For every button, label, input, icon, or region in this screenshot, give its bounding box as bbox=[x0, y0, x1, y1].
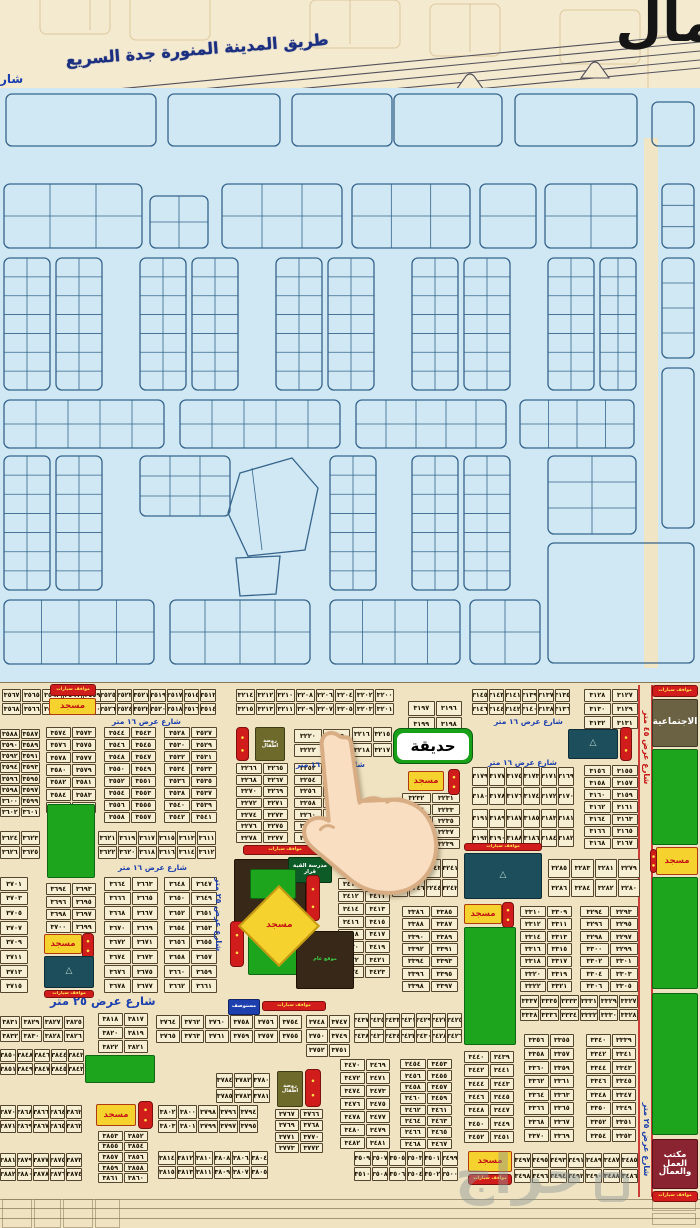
parcel: ٣٣٤٥ bbox=[612, 1075, 637, 1088]
street-width-label-vertical: شارع عرض ٤٥ متر bbox=[640, 689, 653, 805]
parcel: ٣٥٥٧ bbox=[131, 812, 157, 823]
parcel: ٣٤٦٧ bbox=[427, 1139, 453, 1149]
parcel-block: ٣٣٣٧٣٣٣٥٣٣٣٣٣٣٣١٣٣٢٩٣٣٢٧٣٣٣٨٣٣٣٦٣٣٣٤٣٣٣٢… bbox=[520, 995, 638, 1021]
parcel: ٣٣٣٣ bbox=[560, 995, 579, 1008]
parcel: ٣٨٠٢ bbox=[158, 1105, 177, 1119]
parcel: ٣٣٥٠ bbox=[586, 1102, 611, 1115]
parcel: ٣٥٩٩ bbox=[21, 796, 41, 806]
parcel: ٣٣٧٠ bbox=[524, 1129, 549, 1142]
parcel: ٣٤٨٢ bbox=[340, 1137, 365, 1149]
parking-bar-icon bbox=[650, 849, 657, 873]
parcel: ٣٥٥٢ bbox=[104, 776, 130, 787]
parcel-block: ٣٣٥٦٣٣٥٥٣٣٥٨٣٣٥٧٣٣٦٠٣٣٥٩٣٣٦٢٣٣٦١٣٣٦٤٣٣٦٣… bbox=[524, 1034, 574, 1142]
parcel: ٣٢٨٠ bbox=[618, 879, 640, 898]
parcel: ٣٨٥١ bbox=[0, 1063, 16, 1076]
parcel: ٣٦٢٢ bbox=[98, 846, 117, 860]
parcel: ٣٢٨٣ bbox=[571, 859, 593, 878]
parcel: ٣٧٧٣ bbox=[275, 1143, 299, 1153]
parcel: ٣٤٢٨ bbox=[432, 1029, 447, 1044]
parcel: ٣٣٤١ bbox=[612, 1048, 637, 1061]
parcel: ٣١٣٨ bbox=[538, 703, 554, 716]
street-width-label-vertical: شارع عرض ٢٥ متر bbox=[640, 1097, 653, 1181]
parcel: ٣٧٠٠ bbox=[46, 921, 71, 933]
parcel-block: ٣٧٦٤٣٧٦٢٣٧٦٠٣٧٥٨٣٧٥٦٣٧٥٤٣٧٦٥٣٧٦٣٣٧٦١٣٧٥٩… bbox=[156, 1015, 302, 1043]
parcel: ٣٥٨٣ bbox=[72, 789, 97, 800]
parcel: ٣٥٠٩ bbox=[354, 1151, 371, 1166]
parcel: ٣٤٢٥ bbox=[447, 1013, 462, 1028]
parcel: ٣٦٧٤ bbox=[104, 950, 131, 964]
parcel: ٣٨٧٦ bbox=[50, 1168, 66, 1182]
parcel: ٣٤٢٣ bbox=[365, 966, 391, 978]
parcel: ٣٤٩٥ bbox=[532, 1153, 549, 1168]
parcel: ٣٢٠٠ bbox=[375, 689, 394, 702]
parcel: ٣٤٣٥ bbox=[370, 1013, 385, 1028]
parcel: ٣٥١٦ bbox=[184, 703, 200, 716]
mosque-label: مسجد bbox=[464, 904, 502, 924]
parcel: ٣١٦٨ bbox=[584, 838, 611, 849]
parcel: ٣٥٧٣ bbox=[72, 727, 97, 738]
parcel: ٣٤٨٧ bbox=[603, 1153, 620, 1168]
parcel: ٣٢٦٦ bbox=[236, 763, 262, 774]
parcel: ٣٨٢٢ bbox=[98, 1040, 123, 1053]
parcel: ٣٦٧٢ bbox=[104, 936, 131, 950]
parcel: ٣٧٥٠ bbox=[306, 1029, 328, 1042]
parcel-block: ٣٢٨٥٣٢٨٣٣٢٨١٣٢٧٩٣٢٨٦٣٢٨٤٣٢٨٢٣٢٨٠ bbox=[548, 859, 640, 897]
parcel: ٣٥٣٥ bbox=[191, 776, 217, 787]
parcel: ٣٧٥٧ bbox=[254, 1030, 278, 1044]
parcel: ٣٦٦٥ bbox=[132, 892, 159, 906]
parcel: ٣٤٢٦ bbox=[447, 1029, 462, 1044]
parcel: ٣٤٧٦ bbox=[340, 1098, 365, 1110]
parcel: ٣١٨٢ bbox=[558, 829, 574, 848]
edge-parcel bbox=[652, 1213, 696, 1225]
parcel: ٣٤٩٦ bbox=[532, 1169, 549, 1184]
parcel: ٣٤٣٨ bbox=[354, 1029, 369, 1044]
parcel: ٣٣٦٧ bbox=[550, 1116, 575, 1129]
parcel: ٣٨٤٨ bbox=[17, 1049, 33, 1062]
parcel: ٣٥٣٦ bbox=[164, 776, 190, 787]
parcel: ٣٥٧٤ bbox=[46, 727, 71, 738]
parcel: ٣٣٣٥ bbox=[540, 995, 559, 1008]
parcel: ٣٢٩٤ bbox=[580, 906, 609, 917]
parcel: ٣٢٧٩ bbox=[618, 859, 640, 878]
parcel: ٣٥٠٠ bbox=[442, 1167, 459, 1182]
parcel: ٣٥٢١ bbox=[133, 689, 149, 702]
parcel: ٣٥٣٨ bbox=[164, 788, 190, 799]
parcel: ٣٦٧٥ bbox=[132, 965, 159, 979]
parcel: ٣٥٢٥ bbox=[100, 689, 116, 702]
mosque-label: مسجد bbox=[49, 698, 96, 715]
parcel: ٣٥٠٤ bbox=[407, 1167, 424, 1182]
parcel: ٣١٦٤ bbox=[584, 814, 611, 825]
parcel: ٣٦٩٥ bbox=[72, 896, 97, 908]
parcel-block: ٣٨٨١٣٨٧٩٣٨٧٧٣٨٧٥٣٨٧٣٣٨٨٢٣٨٨٠٣٨٧٨٣٨٧٦٣٨٧٤ bbox=[0, 1153, 82, 1181]
parking-strip: مواقف سيارات bbox=[262, 1001, 326, 1011]
kindergarten-label: روضة اطفال bbox=[255, 727, 285, 761]
parcel: ٣١٢٩ bbox=[612, 703, 639, 716]
parcel: ٣٤٢٩ bbox=[416, 1013, 431, 1028]
parcel: ٣٤٩٩ bbox=[442, 1151, 459, 1166]
parcel: ٣٦١٦ bbox=[158, 846, 177, 860]
parcel: ٣٨٧١ bbox=[0, 1120, 16, 1134]
parcel: ٣٥٠٦ bbox=[389, 1167, 406, 1182]
parcel-block: ٣٤٩٧٣٤٩٥٣٤٩٣٣٤٩١٣٤٨٩٣٤٨٧٣٤٨٥٣٤٩٨٣٤٩٦٣٤٩٤… bbox=[514, 1153, 638, 1183]
parcel: ٣٤٩٨ bbox=[514, 1169, 531, 1184]
parcel-block: ٣٧٨٤٣٧٨٢٣٧٨٠٣٧٨٥٣٧٨٣٣٧٨١ bbox=[216, 1073, 270, 1103]
parcel: ٣٣٠٦ bbox=[580, 981, 609, 992]
parcel: ٣٧٧٢ bbox=[300, 1143, 324, 1153]
parcel-block: ٣٤٧٠٣٤٦٩٣٤٧٢٣٤٧١٣٤٧٤٣٤٧٣٣٤٧٦٣٤٧٥٣٤٧٨٣٤٧٧… bbox=[340, 1059, 390, 1149]
parcel: ٣٤٣٩ bbox=[490, 1051, 515, 1063]
parcel: ٣٧٥٤ bbox=[279, 1015, 303, 1029]
parcel: ٣٨٥٥ bbox=[98, 1142, 123, 1152]
parcel: ٣٨١٢ bbox=[177, 1151, 195, 1165]
parcel: ٣٥٨٢ bbox=[46, 777, 71, 788]
parcel: ٣٢٩٣ bbox=[610, 906, 639, 917]
parcel: ٣٨١٤ bbox=[158, 1151, 176, 1165]
parcel: ٣٨٦٣ bbox=[66, 1120, 82, 1134]
edge-parcel bbox=[95, 1199, 120, 1228]
parcel: ٣٧٨٤ bbox=[216, 1073, 233, 1088]
parcel: ٣١٣٥ bbox=[555, 689, 571, 702]
parcel: ٣٢٩٦ bbox=[580, 918, 609, 929]
parcel: ٣٤٧٨ bbox=[340, 1111, 365, 1123]
parcel: ٣٥٨٧ bbox=[21, 729, 41, 739]
parcel: ٣٥٧٨ bbox=[46, 752, 71, 763]
parcel: ٣٣٢٧ bbox=[619, 995, 638, 1008]
parcel: ٣١٣٧ bbox=[538, 689, 554, 702]
parcel: ٣٨١١ bbox=[195, 1166, 213, 1180]
parcel: ٣٦٥٢ bbox=[164, 906, 190, 920]
parcel: ٣٣٥٦ bbox=[524, 1034, 549, 1047]
parcel: ٣٨٠٧ bbox=[232, 1166, 250, 1180]
parcel: ٣١٧٠ bbox=[558, 787, 574, 806]
parcel: ٣٨٥٨ bbox=[124, 1163, 149, 1173]
parcel: ٣٥١٣ bbox=[200, 689, 216, 702]
parcel: ٣٨٢٥ bbox=[64, 1016, 84, 1029]
parcel: ٣٨٠٨ bbox=[214, 1151, 232, 1165]
parcel-block: ٣١٧٩٣١٧٧٣١٧٥٣١٧٣٣١٧١٣١٦٩٣١٨٠٣١٧٨٣١٧٦٣١٧٤… bbox=[472, 767, 574, 805]
parcel: ٣٨٧٨ bbox=[33, 1168, 49, 1182]
parcel: ٣٤٤٩ bbox=[490, 1117, 515, 1129]
parcel: ٣٦٦٧ bbox=[132, 906, 159, 920]
parcel-block: ٣١٢٨٣١٢٧٣١٣٠٣١٢٩٣١٣٢٣١٣١ bbox=[584, 689, 638, 729]
parcel: ٣٨٣١ bbox=[0, 1016, 20, 1029]
parcel: ٣٨٠٤ bbox=[251, 1151, 269, 1165]
parcel: ٣٢١١ bbox=[276, 703, 295, 716]
blue-parcel-region bbox=[0, 88, 700, 682]
parcel: ٣٢٩٩ bbox=[610, 943, 639, 954]
parcel: ٣١٧٤ bbox=[523, 787, 539, 806]
parcel: ٣٦٧١ bbox=[132, 936, 159, 950]
parcel: ٣٤٣٤ bbox=[385, 1029, 400, 1044]
parcel: ٣٦٠٠ bbox=[0, 796, 20, 806]
parcel: ٣١٩١ bbox=[472, 809, 488, 828]
parcel: ٣٤٨١ bbox=[366, 1137, 391, 1149]
parcel: ٣٣٥٥ bbox=[550, 1034, 575, 1047]
parcel: ٣٨٠١ bbox=[178, 1120, 197, 1134]
parcel: ٣٥١٠ bbox=[354, 1167, 371, 1182]
parcel: ٣٨٤٥ bbox=[51, 1063, 67, 1076]
parcel: ٣٥٢٣ bbox=[117, 689, 133, 702]
parcel: ٣٥٤٧ bbox=[131, 751, 157, 762]
parcel: ٣٧٦٦ bbox=[300, 1109, 324, 1119]
parcel-block: ٣٣٤٠٣٣٣٩٣٣٤٢٣٣٤١٣٣٤٤٣٣٤٣٣٣٤٦٣٣٤٥٣٣٤٨٣٣٤٧… bbox=[586, 1034, 636, 1142]
parcel: ٣٨٠٩ bbox=[214, 1166, 232, 1180]
labor-office-label: مكتب العملوالعمال bbox=[652, 1139, 698, 1189]
parcel: ٣٨٦٢ bbox=[66, 1105, 82, 1119]
parcel-block: ٣٥٠٩٣٥٠٧٣٥٠٥٣٥٠٣٣٥٠١٣٤٩٩٣٥١٠٣٥٠٨٣٥٠٦٣٥٠٤… bbox=[354, 1151, 458, 1181]
parcel-block: ٣٦٢٤٣٦٢٣٣٦٢٦٣٦٢٥ bbox=[0, 831, 40, 859]
parcel: ٣٢٨٤ bbox=[571, 879, 593, 898]
parcel: ٣٥٠٢ bbox=[424, 1167, 441, 1182]
parcel: ٣٨٤٧ bbox=[34, 1063, 50, 1076]
parcel: ٣٥٤٤ bbox=[104, 727, 130, 738]
parcel-block: ٣٧٦٧٣٧٦٦٣٧٦٩٣٧٦٨٣٧٧١٣٧٧٠٣٧٧٣٣٧٧٢ bbox=[275, 1109, 323, 1153]
parcel: ٣٤٤٧ bbox=[490, 1104, 515, 1116]
parcel: ٣٧٧٠ bbox=[300, 1132, 324, 1142]
parcel: ٣٢٠٥ bbox=[335, 703, 354, 716]
parcel: ٣٤٣٠ bbox=[416, 1029, 431, 1044]
parcel: ٣٦٢٤ bbox=[0, 831, 20, 845]
parcel: ٣١٨٠ bbox=[472, 787, 488, 806]
parcel: ٣٤٥٩ bbox=[427, 1093, 453, 1103]
mosque-label: مسجد bbox=[468, 1151, 512, 1172]
plat-map-screenshot: طريق المدينة المنورة جدة السريع مال شار … bbox=[0, 0, 700, 1228]
parcel: ٣٢١٠ bbox=[276, 689, 295, 702]
parcel: ٣٥٥٥ bbox=[131, 800, 157, 811]
parcel: ٣٦٢٦ bbox=[0, 846, 20, 860]
parcel: ٣٤٣٢ bbox=[401, 1029, 416, 1044]
parcel: ٣٣٤٨ bbox=[586, 1089, 611, 1102]
blue-blocks bbox=[0, 88, 700, 682]
parcel: ٣١٥٧ bbox=[612, 777, 639, 788]
parcel: ٣٢٨٦ bbox=[548, 879, 570, 898]
parcel: ٣٣٤٣ bbox=[612, 1061, 637, 1074]
parking-bar-icon bbox=[138, 1101, 153, 1129]
park-area bbox=[652, 749, 698, 845]
parcel: ٣٤٦٤ bbox=[400, 1116, 426, 1126]
parcel: ٣٨١٧ bbox=[124, 1013, 149, 1026]
parcel: ٣٣٥٧ bbox=[550, 1048, 575, 1061]
parcel: ٣٥٨١ bbox=[72, 777, 97, 788]
parcel: ٣٧٨١ bbox=[253, 1089, 270, 1104]
street-width-label: شارع عرض ١٦ متر bbox=[488, 758, 557, 767]
parcel: ٣٨٤٣ bbox=[68, 1063, 84, 1076]
parcel: ٣٧٠٩ bbox=[0, 936, 28, 950]
parcel-block: ٣١٥٦٣١٥٥٣١٥٨٣١٥٧٣١٦٠٣١٥٩٣١٦٢٣١٦١٣١٦٤٣١٦٣… bbox=[584, 765, 638, 849]
parcel: ٣٨٠٦ bbox=[232, 1151, 250, 1165]
parcel: ٣١٤٥ bbox=[472, 689, 488, 702]
parcel: ٣١٦٣ bbox=[612, 814, 639, 825]
parcel: ٣٦٧٧ bbox=[132, 979, 159, 993]
park-area bbox=[464, 927, 516, 1045]
parcel: ٣٣٥٨ bbox=[524, 1048, 549, 1061]
parcel: ٣٧٧١ bbox=[275, 1132, 299, 1142]
parcel: ٣٣١٢ bbox=[520, 918, 546, 929]
parcel: ٣٢٩٨ bbox=[580, 931, 609, 942]
parcel: ٣٦١٧ bbox=[138, 831, 157, 845]
parcel: ٣٨٣٠ bbox=[21, 1030, 41, 1043]
parcel-block: ٣٦٦٤٣٦٦٣٣٦٦٦٣٦٦٥٣٦٦٨٣٦٦٧٣٦٧٠٣٦٦٩٣٦٧٢٣٦٧١… bbox=[104, 877, 158, 993]
parcel: ٣٢١٥ bbox=[236, 703, 255, 716]
parcel: ٣٧٩٨ bbox=[198, 1105, 217, 1119]
parcel: ٣٤٤٤ bbox=[464, 1078, 489, 1090]
parcel: ٣٤٩٤ bbox=[550, 1169, 567, 1184]
parcel: ٣٥٩٨ bbox=[0, 785, 20, 795]
parcel: ٣٧٠٣ bbox=[0, 892, 28, 906]
parcel: ٣١٨٣ bbox=[541, 809, 557, 828]
parcel: ٣٣٣٧ bbox=[520, 995, 539, 1008]
parcel: ٣٤٦٦ bbox=[400, 1127, 426, 1137]
parcel: ٣١٢٧ bbox=[612, 689, 639, 702]
parcel: ٣٦٧٦ bbox=[104, 965, 131, 979]
parcel: ٣٨٦٥ bbox=[50, 1120, 66, 1134]
parcel: ٣٤١٧ bbox=[365, 929, 391, 941]
parcel: ٣٨١٥ bbox=[158, 1166, 176, 1180]
parcel: ٣٥٥٤ bbox=[104, 788, 130, 799]
parcel: ٣٥٠٥ bbox=[389, 1151, 406, 1166]
parcel: ٣٥٩٥ bbox=[21, 774, 41, 784]
parcel: ٣٨٥٩ bbox=[98, 1163, 123, 1173]
parcel: ٣٤٨٦ bbox=[621, 1169, 638, 1184]
parcel: ٣٤٥١ bbox=[490, 1131, 515, 1143]
parcel: ٣١٧٦ bbox=[506, 787, 522, 806]
parcel: ٣٧٩٥ bbox=[239, 1120, 258, 1134]
parcel-block: ٣٥٤٤٣٥٤٣٣٥٤٦٣٥٤٥٣٥٤٨٣٥٤٧٣٥٥٠٣٥٤٩٣٥٥٢٣٥٥١… bbox=[104, 727, 156, 823]
parcel: ٣٤٥٢ bbox=[464, 1131, 489, 1143]
parcel: ٣٣٤٦ bbox=[586, 1075, 611, 1088]
parcel: ٣٧٩٤ bbox=[239, 1105, 258, 1119]
parcel: ٣٥١٤ bbox=[200, 703, 216, 716]
parcel: ٣١٦٦ bbox=[584, 826, 611, 837]
parcel: ٣٨١٣ bbox=[177, 1166, 195, 1180]
parcel: ٣٥٢٨ bbox=[164, 727, 190, 738]
edge-parcel bbox=[34, 1199, 61, 1228]
parcel: ٣٥٩٦ bbox=[0, 774, 20, 784]
parcel: ٣٢٠٣ bbox=[355, 703, 374, 716]
parcel: ٣٥٤٩ bbox=[131, 763, 157, 774]
parking-strip: مواقف سيارات bbox=[652, 685, 698, 697]
parcel: ٣٥٢٤ bbox=[117, 703, 133, 716]
parcel: ٣٤١٥ bbox=[365, 916, 391, 928]
parcel: ٣٤٦٩ bbox=[366, 1059, 391, 1071]
parcel: ٣٦٢٣ bbox=[21, 831, 41, 845]
parcel: ٣٤٦٥ bbox=[427, 1127, 453, 1137]
mosque-label: مسجد bbox=[656, 847, 698, 875]
parcel: ٣٥٦٦ bbox=[22, 703, 41, 716]
parcel: ٣٢٦٧ bbox=[263, 775, 289, 786]
parcel: ٣٣٢٩ bbox=[599, 995, 618, 1008]
edge-parcel bbox=[2, 1199, 32, 1228]
parcel: ٣٤٣٦ bbox=[370, 1029, 385, 1044]
clinic-label: مستوصف bbox=[228, 999, 260, 1015]
parcel: ٣١٦٩ bbox=[558, 767, 574, 786]
parcel: ٣٤٣٣ bbox=[385, 1013, 400, 1028]
parcel: ٣٢٧٨ bbox=[236, 832, 262, 843]
parcel-block: ٣٢٦٦٣٢٦٥٣٢٦٨٣٢٦٧٣٢٧٠٣٢٦٩٣٢٧٢٣٢٧١٣٢٧٤٣٢٧٣… bbox=[236, 763, 288, 843]
parcel: ٣٣٠٢ bbox=[580, 956, 609, 967]
parcel: ٣٨٦١ bbox=[98, 1173, 123, 1183]
street-width-label: شارع عرض ١٦ متر bbox=[494, 717, 563, 726]
parcel-block: ٣٥٨٨٣٥٨٧٣٥٩٠٣٥٨٩٣٥٩٢٣٥٩١٣٥٩٤٣٥٩٣٣٥٩٦٣٥٩٥… bbox=[0, 729, 40, 817]
parcel: ٣٨٥٢ bbox=[124, 1131, 149, 1141]
parcel: ٣٦٧٠ bbox=[104, 921, 131, 935]
parcel: ٣٣٨٩ bbox=[431, 931, 459, 942]
parcel: ٣٢٧٠ bbox=[236, 786, 262, 797]
parking-strip: مواقف سيارات bbox=[468, 1174, 512, 1185]
parcel: ٣٥٤٢ bbox=[164, 812, 190, 823]
parcel: ٣١٨٧ bbox=[506, 809, 522, 828]
parcel: ٣١٥٨ bbox=[584, 777, 611, 788]
parcel: ٣٨٨٠ bbox=[17, 1168, 33, 1182]
parcel: ٣٣١٦ bbox=[520, 943, 546, 954]
parcel: ٣٤٨٥ bbox=[621, 1153, 638, 1168]
parcel: ٣٣٨٨ bbox=[402, 918, 430, 929]
parcel: ٣٤٤٨ bbox=[464, 1104, 489, 1116]
parcel: ٣٢١٤ bbox=[236, 689, 255, 702]
parcel: ٣١٦٢ bbox=[584, 801, 611, 812]
parcel: ٣٤٥٧ bbox=[427, 1082, 453, 1092]
parcel: ٣٦٧٣ bbox=[132, 950, 159, 964]
parcel: ٣٦٠١ bbox=[21, 807, 41, 817]
parcel: ٣٥٣٠ bbox=[164, 739, 190, 750]
parcel: ٣٨٤٤ bbox=[51, 1049, 67, 1062]
parcel: ٣٥٣١ bbox=[191, 751, 217, 762]
parcel: ٣١٣٠ bbox=[584, 703, 611, 716]
parcel: ٣٨٦٠ bbox=[124, 1173, 149, 1183]
parcel: ٣١٣٦ bbox=[555, 703, 571, 716]
school-block: △ bbox=[464, 853, 542, 899]
parcel: ٣٧٨٠ bbox=[253, 1073, 270, 1088]
parcel: ٣٥٤٣ bbox=[131, 727, 157, 738]
parcel: ٣٧٦٣ bbox=[181, 1030, 205, 1044]
parcel: ٣١٤٦ bbox=[472, 703, 488, 716]
parcel: ٣٨٤٦ bbox=[34, 1049, 50, 1062]
parking-bar-icon bbox=[448, 769, 460, 795]
parcel: ٣٣١٣ bbox=[547, 931, 573, 942]
parcel: ٣١٧١ bbox=[541, 767, 557, 786]
parcel: ٣٤٧٠ bbox=[340, 1059, 365, 1071]
parcel: ٣١٤٢ bbox=[505, 703, 521, 716]
parcel: ٣٣٨٧ bbox=[431, 918, 459, 929]
parcel: ٣٤٦٠ bbox=[400, 1093, 426, 1103]
parcel: ٣٤٨٠ bbox=[340, 1124, 365, 1136]
parcel: ٣٤٩٣ bbox=[550, 1153, 567, 1168]
parking-strip: مواقف سيارات bbox=[652, 1191, 698, 1202]
parcel: ٣٤٦١ bbox=[427, 1105, 453, 1115]
parcel: ٣٦٦٤ bbox=[104, 877, 131, 891]
parcel: ٣١٥٩ bbox=[612, 789, 639, 800]
parcel: ٣٨٧٤ bbox=[66, 1168, 82, 1182]
parcel: ٣١٨٥ bbox=[523, 809, 539, 828]
parcel: ٣٧١٣ bbox=[0, 965, 28, 979]
parcel: ٣٣٩٠ bbox=[402, 931, 430, 942]
park-area bbox=[652, 877, 698, 989]
parcel: ٣٦٦٢ bbox=[164, 979, 190, 993]
parcel: ٣٨٠٠ bbox=[178, 1105, 197, 1119]
parcel: ٣٣١٨ bbox=[520, 956, 546, 967]
parcel: ٣٣٣١ bbox=[580, 995, 599, 1008]
parcel: ٣٣٠٩ bbox=[547, 906, 573, 917]
parcel-block: ٣٣١٠٣٣٠٩٣٣١٢٣٣١١٣٣١٤٣٣١٣٣٣١٦٣٣١٥٣٣١٨٣٣١٧… bbox=[520, 906, 572, 992]
parcel: ٣٣٠١ bbox=[610, 956, 639, 967]
parcel: ٣١٥٥ bbox=[612, 765, 639, 776]
parcel: ٣٤٢٧ bbox=[432, 1013, 447, 1028]
parcel: ٣٣٠٣ bbox=[610, 968, 639, 979]
parcel: ٣٣١٠ bbox=[520, 906, 546, 917]
parcel: ٣٥٣٢ bbox=[164, 751, 190, 762]
